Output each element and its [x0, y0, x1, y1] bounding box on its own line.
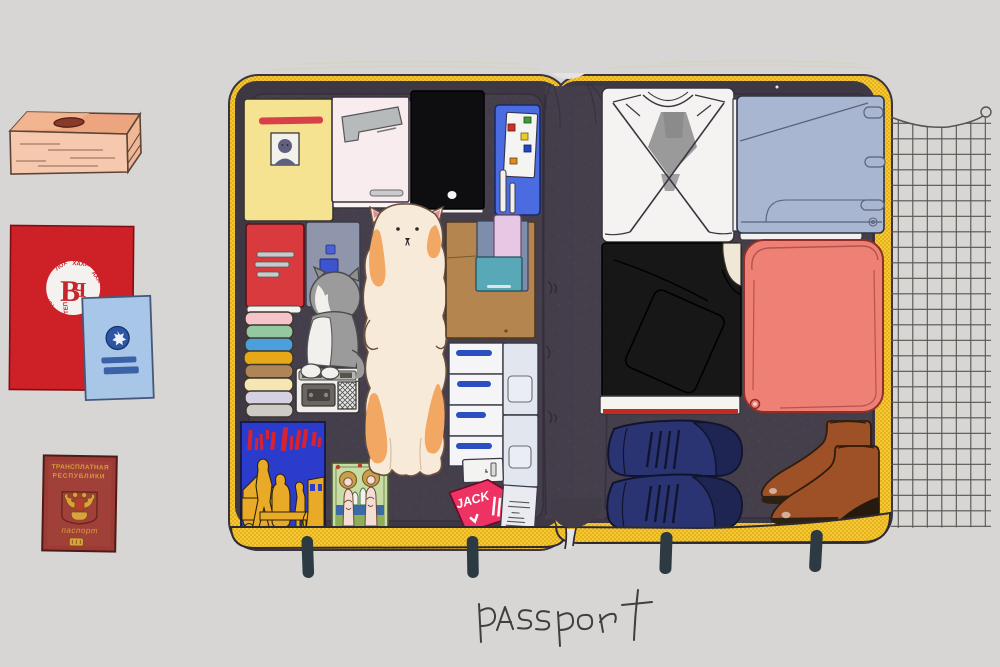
svg-text:паспорт: паспорт — [61, 526, 97, 536]
svg-text:ТРАНСПЛАТНАЯ: ТРАНСПЛАТНАЯ — [52, 464, 109, 472]
svg-text:РЕСПУБЛИКИ: РЕСПУБЛИКИ — [52, 473, 104, 481]
svg-text:ТЕП: ТЕП — [63, 302, 70, 314]
